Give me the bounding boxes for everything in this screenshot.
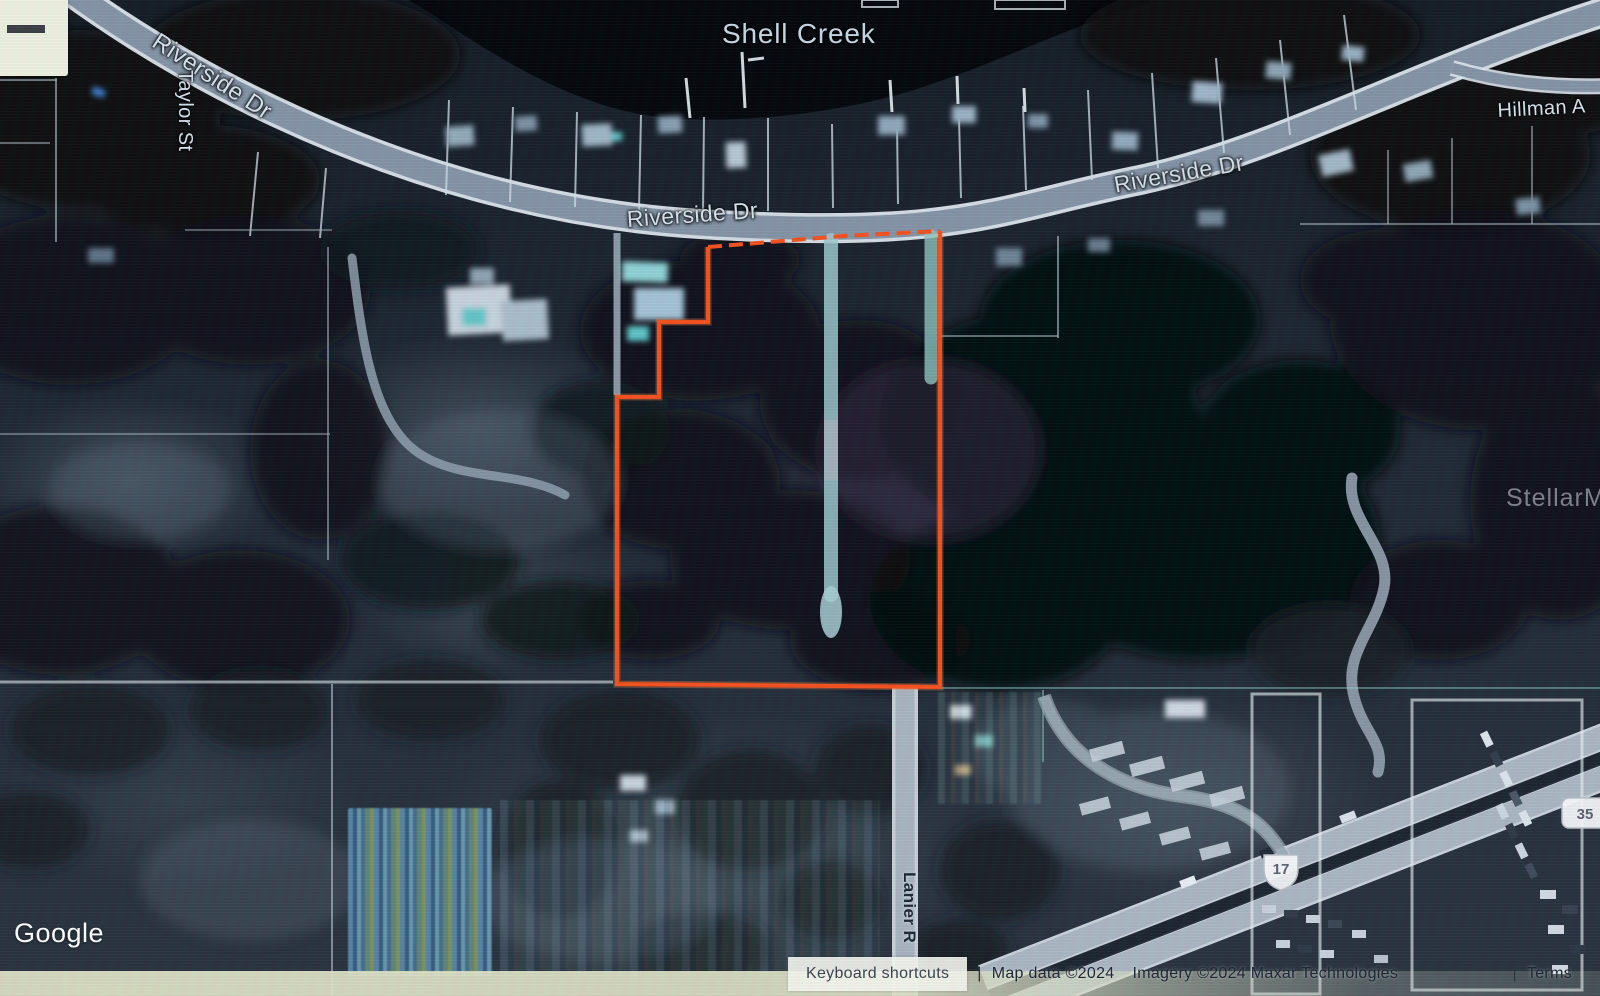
storage-yard-rows bbox=[938, 692, 1042, 804]
nursery-field-rows bbox=[348, 808, 492, 976]
zoom-out-minus-icon bbox=[7, 25, 45, 33]
road-label-hillman-ave: Hillman A bbox=[1497, 95, 1586, 123]
road-label-taylor-st: Taylor St bbox=[173, 70, 196, 151]
route-shield-fl35-number: 35 bbox=[1577, 806, 1594, 823]
zoom-out-button[interactable] bbox=[0, 0, 68, 76]
orchard-rows bbox=[500, 800, 880, 978]
google-logo[interactable]: Google bbox=[14, 918, 104, 949]
keyboard-shortcuts-button[interactable]: Keyboard shortcuts bbox=[788, 957, 967, 991]
attribution-separator-2: | bbox=[1512, 965, 1516, 983]
route-shield-us17-number: 17 bbox=[1273, 861, 1290, 878]
water-label-shell-creek: Shell Creek bbox=[722, 18, 876, 50]
route-shield-fl35: 35 bbox=[1562, 798, 1600, 828]
imagery-attribution: Imagery ©2024 Maxar Technologies bbox=[1132, 965, 1398, 983]
attribution-separator: | bbox=[977, 965, 981, 983]
road-label-lanier-rd: Lanier R bbox=[899, 872, 919, 943]
terms-link[interactable]: Terms bbox=[1527, 965, 1572, 983]
map-attribution-bar: Keyboard shortcuts | Map data ©2024 Imag… bbox=[788, 957, 1572, 991]
map-data-link[interactable]: Map data ©2024 bbox=[992, 965, 1115, 983]
stellar-mls-watermark: StellarMLS bbox=[1506, 484, 1600, 513]
google-maps-satellite-view[interactable]: 17 35 Shell Creek Riverside Dr Riverside… bbox=[0, 0, 1600, 996]
